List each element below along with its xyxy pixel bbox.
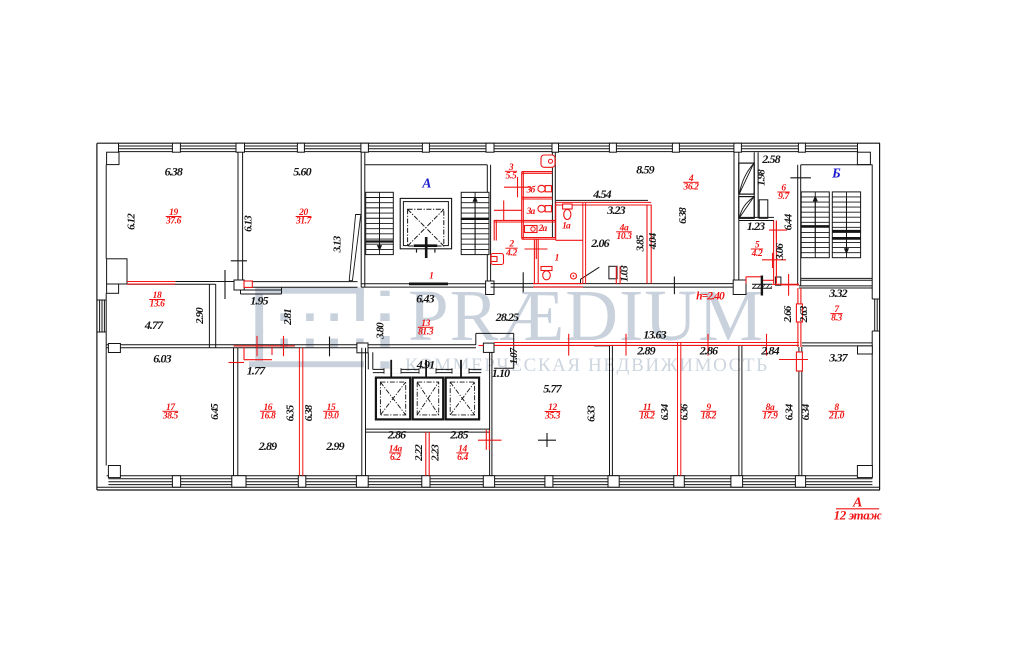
- svg-text:1.03: 1.03: [619, 265, 631, 282]
- svg-text:1.07: 1.07: [508, 347, 520, 364]
- svg-text:5.5: 5.5: [506, 171, 517, 181]
- svg-text:8.59: 8.59: [636, 163, 654, 177]
- svg-text:6.45: 6.45: [209, 403, 221, 420]
- svg-text:2.86: 2.86: [699, 344, 718, 358]
- svg-text:4.91: 4.91: [416, 357, 434, 371]
- svg-text:2.81: 2.81: [282, 309, 294, 326]
- svg-text:2.89: 2.89: [636, 344, 655, 358]
- svg-text:1.10: 1.10: [492, 366, 510, 380]
- svg-text:81.3: 81.3: [418, 327, 434, 337]
- svg-text:6.13: 6.13: [243, 215, 255, 232]
- svg-text:1.23: 1.23: [747, 219, 765, 233]
- svg-text:6.33: 6.33: [586, 405, 598, 422]
- svg-text:6.03: 6.03: [153, 352, 171, 366]
- svg-text:1.77: 1.77: [247, 363, 266, 377]
- svg-text:6.43: 6.43: [416, 292, 434, 306]
- svg-text:6.38: 6.38: [677, 207, 689, 224]
- svg-text:18.2: 18.2: [701, 411, 717, 421]
- svg-text:16.8: 16.8: [260, 411, 276, 421]
- svg-text:4.54: 4.54: [592, 187, 611, 201]
- svg-text:4.77: 4.77: [144, 318, 164, 332]
- svg-text:2.06: 2.06: [590, 236, 609, 250]
- svg-text:2.86: 2.86: [387, 428, 406, 442]
- svg-text:6.38: 6.38: [165, 165, 183, 179]
- svg-text:6.35: 6.35: [285, 404, 297, 421]
- svg-text:2.89: 2.89: [258, 439, 277, 453]
- svg-text:А: А: [421, 176, 431, 191]
- svg-text:8.3: 8.3: [831, 314, 842, 324]
- svg-text:2.23: 2.23: [429, 444, 441, 462]
- svg-text:38.5: 38.5: [162, 411, 179, 421]
- svg-text:18.2: 18.2: [639, 411, 655, 421]
- svg-text:3.06: 3.06: [774, 243, 786, 261]
- svg-text:21.0: 21.0: [828, 411, 845, 421]
- svg-text:6.38: 6.38: [303, 404, 315, 421]
- svg-text:2.85: 2.85: [449, 428, 468, 442]
- svg-text:h=2.40: h=2.40: [696, 291, 725, 303]
- svg-text:10.3: 10.3: [616, 232, 632, 242]
- svg-text:5.77: 5.77: [543, 381, 562, 395]
- svg-text:12 этаж: 12 этаж: [834, 508, 883, 523]
- svg-text:5.60: 5.60: [293, 165, 311, 179]
- svg-text:1а: 1а: [562, 222, 571, 232]
- svg-text:1.95: 1.95: [250, 293, 268, 307]
- svg-text:17.9: 17.9: [762, 411, 778, 421]
- svg-text:4.2: 4.2: [751, 249, 763, 259]
- svg-text:4.2: 4.2: [505, 248, 517, 258]
- svg-text:6.34: 6.34: [659, 403, 671, 420]
- svg-text:3.85: 3.85: [635, 234, 647, 252]
- svg-text:19.0: 19.0: [323, 411, 339, 421]
- svg-text:4.04: 4.04: [647, 232, 659, 250]
- svg-text:9.7: 9.7: [778, 192, 790, 202]
- svg-text:3.23: 3.23: [606, 203, 625, 217]
- svg-text:Б: Б: [831, 166, 841, 181]
- svg-text:6.36: 6.36: [679, 403, 691, 420]
- svg-text:2.84: 2.84: [760, 344, 779, 358]
- svg-text:3.13: 3.13: [332, 235, 344, 253]
- svg-text:6.34: 6.34: [800, 403, 812, 420]
- svg-text:2.58: 2.58: [761, 152, 780, 166]
- svg-text:3а: 3а: [526, 207, 536, 217]
- svg-text:3.80: 3.80: [375, 322, 387, 340]
- svg-text:28.25: 28.25: [495, 310, 519, 324]
- svg-text:35.3: 35.3: [544, 412, 561, 422]
- svg-text:2.99: 2.99: [325, 439, 344, 453]
- svg-text:13.63: 13.63: [643, 327, 666, 341]
- svg-text:6.2: 6.2: [390, 453, 401, 463]
- svg-text:6.34: 6.34: [784, 403, 796, 420]
- svg-text:31.7: 31.7: [295, 217, 313, 227]
- svg-text:2а: 2а: [538, 224, 548, 234]
- svg-text:1: 1: [555, 254, 559, 264]
- svg-text:2.90: 2.90: [194, 307, 206, 325]
- svg-text:1.98: 1.98: [756, 169, 768, 186]
- svg-text:6.44: 6.44: [783, 213, 795, 230]
- svg-text:36.2: 36.2: [682, 182, 699, 192]
- svg-text:2.66: 2.66: [782, 305, 794, 323]
- svg-text:3.32: 3.32: [828, 286, 847, 300]
- svg-text:2.22: 2.22: [413, 444, 425, 462]
- svg-text:2.63: 2.63: [798, 305, 810, 323]
- svg-text:37.6: 37.6: [165, 217, 182, 227]
- svg-text:13.6: 13.6: [149, 300, 165, 310]
- svg-text:1: 1: [429, 272, 433, 282]
- svg-text:6.12: 6.12: [126, 213, 138, 230]
- svg-text:6.4: 6.4: [457, 453, 468, 463]
- svg-text:3.37: 3.37: [828, 351, 848, 365]
